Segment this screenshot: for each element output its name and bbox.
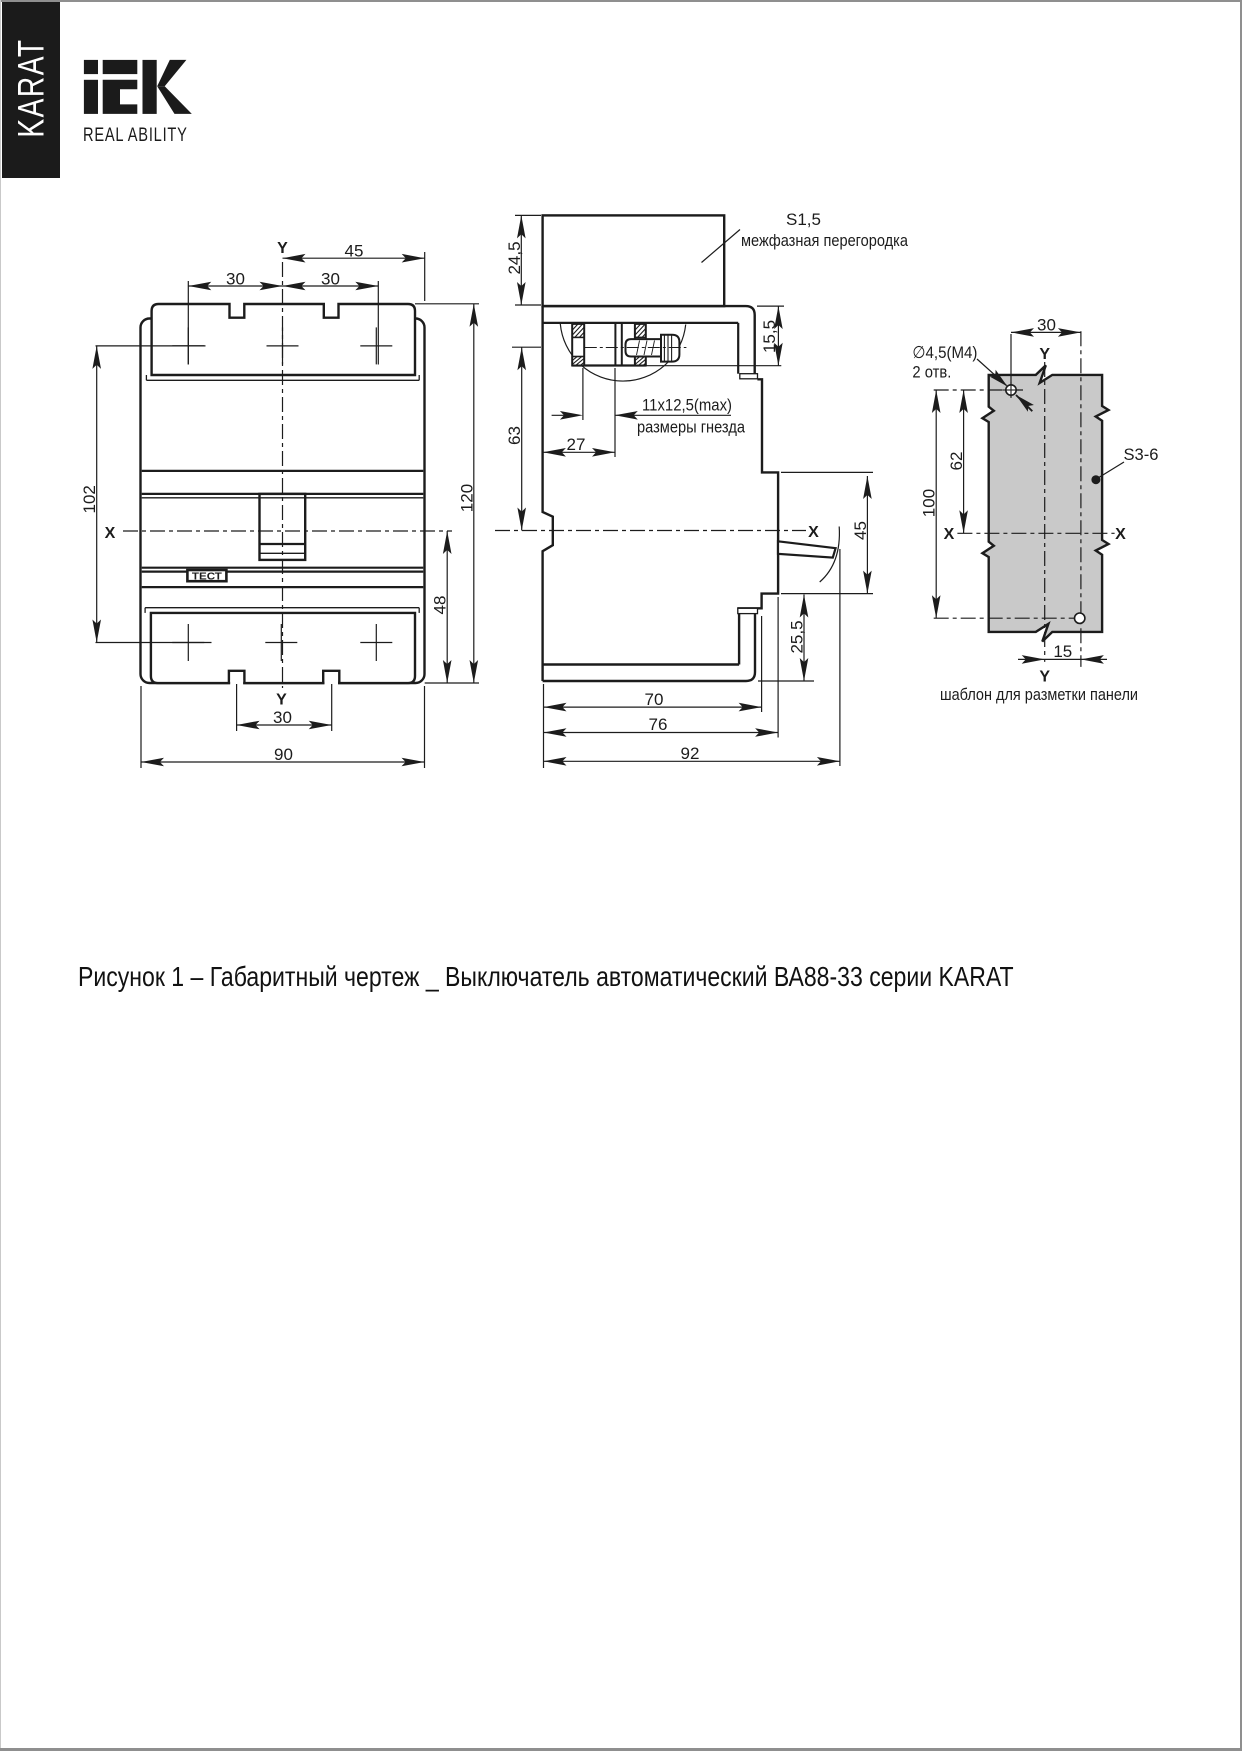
svg-text:30: 30 [273, 708, 292, 727]
svg-text:63: 63 [505, 426, 524, 445]
svg-text:15,5: 15,5 [760, 320, 779, 353]
svg-text:70: 70 [645, 690, 664, 709]
svg-text:102: 102 [80, 485, 99, 513]
svg-text:размеры гнезда: размеры гнезда [637, 418, 745, 437]
svg-text:45: 45 [345, 242, 364, 261]
svg-text:100: 100 [920, 489, 939, 517]
svg-text:48: 48 [431, 596, 450, 615]
svg-text:X: X [1115, 526, 1126, 543]
svg-text:120: 120 [457, 484, 476, 512]
svg-text:Y: Y [1039, 346, 1050, 363]
svg-text:11x12,5(max): 11x12,5(max) [642, 396, 732, 415]
svg-text:30: 30 [321, 269, 340, 288]
svg-text:15: 15 [1053, 642, 1072, 661]
svg-text:шаблон для разметки панели: шаблон для разметки панели [940, 685, 1138, 704]
svg-text:92: 92 [681, 744, 700, 763]
svg-text:X: X [808, 524, 819, 541]
svg-text:2 отв.: 2 отв. [912, 363, 951, 382]
svg-text:межфазная перегородка: межфазная перегородка [741, 231, 908, 250]
svg-text:90: 90 [274, 745, 293, 764]
svg-text:76: 76 [649, 715, 668, 734]
svg-text:Y: Y [276, 692, 287, 709]
svg-text:ТЕСТ: ТЕСТ [192, 571, 223, 583]
svg-text:Y: Y [277, 240, 288, 257]
svg-text:∅4,5(M4): ∅4,5(M4) [912, 343, 977, 362]
svg-text:27: 27 [567, 435, 586, 454]
svg-text:30: 30 [1037, 315, 1056, 334]
svg-text:45: 45 [851, 521, 870, 540]
svg-text:25,5: 25,5 [788, 620, 807, 653]
svg-text:X: X [105, 525, 116, 542]
svg-text:S3-6: S3-6 [1124, 445, 1159, 464]
svg-text:Y: Y [1039, 669, 1050, 686]
svg-text:24,5: 24,5 [505, 241, 524, 274]
svg-text:30: 30 [226, 269, 245, 288]
svg-text:X: X [944, 526, 955, 543]
svg-text:62: 62 [947, 452, 966, 471]
svg-text:S1,5: S1,5 [786, 210, 821, 229]
